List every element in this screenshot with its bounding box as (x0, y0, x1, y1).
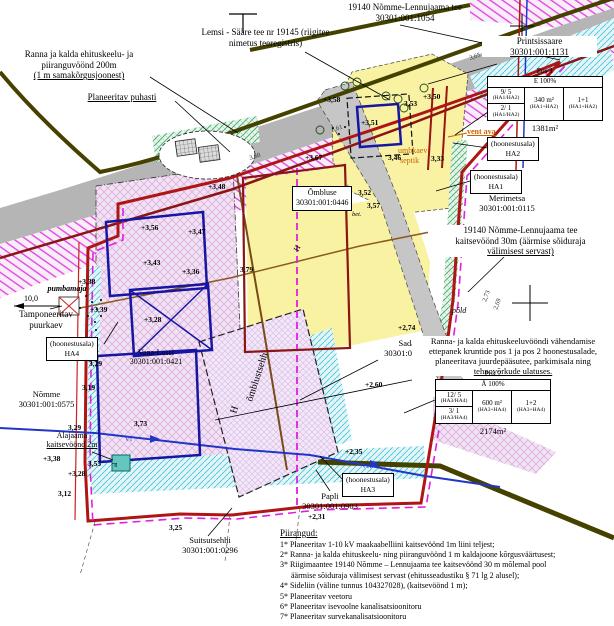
legend-item: 3* Riigimaantee 19140 Nõmme – Lennujaama… (280, 560, 555, 570)
elevation-mark: 3,25 (169, 523, 182, 532)
spot-height-rotated: 2,69 (492, 298, 502, 311)
table-pos2-cell: 1+2(HA3+HA4) (512, 391, 550, 423)
table-pos2-cell: 12/ 5(HA3/HA4) (436, 391, 472, 407)
elevation-mark: 3,79 (240, 265, 253, 274)
pipe-label: V1 (125, 437, 132, 443)
box-ha1: (hoonestusala) HA1 (470, 170, 522, 194)
label-ombluse-name: Õmbluse (296, 188, 348, 198)
label-pold: põld (452, 306, 466, 315)
label-road-protection-30m: 19140 Nõmme-Lennujaama tee kaitsevöönd 3… (428, 225, 613, 257)
material-note: bet. (352, 211, 362, 218)
label-lemsi-line2: nimetus teeregistris) (158, 38, 373, 49)
elevation-mark: +3,36 (182, 267, 199, 276)
table-pos1-box: E 100% 9/ 5(HA1/HA2) 2/ 1(HA1/HA2) 340 m… (487, 76, 603, 121)
elevation-mark: 3,29 (89, 359, 102, 368)
table-pos2-header: Ä 100% (436, 380, 550, 391)
box-ha4: (hoonestusala) HA4 (46, 337, 98, 361)
legend-item: 1* Planeeritav 1-10 kV maakaabelliini ka… (280, 540, 555, 550)
legend-item: 6* Planeeritav isevoolne kanalisatsiooni… (280, 602, 555, 612)
label-tamponeeritav-line1: Tamponeeritav (0, 309, 92, 320)
label-septik: septik (400, 156, 419, 165)
label-papli: Papli 30301:001:0903 (300, 491, 360, 511)
label-merimetsa-name: Merimetsa (462, 193, 552, 203)
elevation-mark: 3,12 (58, 489, 71, 498)
label-ombluse: Õmbluse 30301:001:0446 (292, 186, 352, 211)
label-alajaam-line2: kaitsevöönd 2m (38, 440, 106, 449)
label-vahendamine-line2: ettepanek kruntide pos 1 ja pos 2 hoones… (412, 346, 614, 356)
spot-height-rotated: 2,73 (481, 290, 491, 303)
label-printsissaare-name: Printsissaare (482, 36, 597, 47)
restrictions-legend: Piirangud: 1* Planeeritav 1-10 kV maakaa… (280, 528, 555, 623)
label-road-main-line1: 19140 Nõmme-Lennujaama tee (320, 2, 490, 13)
label-road-main: 19140 Nõmme-Lennujaama tee 30301:001:105… (320, 2, 490, 23)
label-printsissaare-code: 30301:001:1131 (482, 47, 597, 58)
label-papli-name: Papli (300, 491, 360, 501)
label-treatment-plant: Planeeritav puhasti (66, 92, 178, 103)
label-shore-line2: piiranguvöönd 200m (0, 60, 158, 71)
label-ombluse-code: 30301:001:0446 (296, 198, 348, 208)
label-umbkaev: umbkaev (398, 146, 427, 155)
elevation-mark: +3,58 (323, 95, 340, 104)
elevation-mark: +3,39 (90, 305, 107, 314)
elevation-mark: +3,67 (305, 153, 322, 162)
elevation-mark: 3,33 (431, 154, 444, 163)
elevation-mark: +3,38 (43, 454, 60, 463)
label-nomme-code: 30301:001:0575 (4, 399, 89, 409)
label-alajaam: Alajaama kaitsevöönd 2m (38, 431, 106, 450)
box-ha1-line1: (hoonestusala) (474, 172, 518, 182)
table-pos1-header: E 100% (488, 77, 602, 88)
table-pos1: Pos 1 E 100% 9/ 5(HA1/HA2) 2/ 1(HA1/HA2)… (487, 66, 603, 133)
elevation-mark: +3,28 (68, 469, 85, 478)
table-pos2-area: 2174m² (435, 426, 551, 436)
elevation-mark: 3,53 (404, 99, 417, 108)
label-suitsutsehh: Suitsutsehhi 30301:001:0296 (165, 535, 255, 555)
elevation-mark: 3,52 (358, 188, 371, 197)
legend-item: 2* Ranna- ja kalda ehituskeelu- ning pii… (280, 550, 555, 560)
elevation-mark: +2,31 (308, 512, 325, 521)
table-pos2-box: Ä 100% 12/ 5(HA3/HA4) 3/ 1(HA3/HA4) 600 … (435, 379, 551, 424)
label-vahendamine-line3: planeeritava juurdepääsutee, parkimisala… (412, 356, 614, 366)
legend-title: Piirangud: (280, 528, 555, 540)
legend-item: 7* Planeeritav survekanalisatsioonitoru (280, 612, 555, 622)
elevation-mark: +3,47 (188, 227, 205, 236)
label-lemsi-line1: Lemsi - Sääre tee nr 19145 (riigitee (158, 27, 373, 38)
label-distance-10: 10,0 (24, 294, 38, 303)
label-vent-ava: vent ava (467, 127, 496, 136)
pipe-label: V1 (362, 464, 369, 470)
label-vana-lossi-name: Vana-Lossi (120, 348, 192, 357)
label-suitsutsehh-code: 30301:001:0296 (165, 545, 255, 555)
label-shore-line1: Ranna ja kalda ehituskeelu- ja (0, 49, 158, 60)
elevation-mark: 3,46 (388, 153, 401, 162)
table-pos1-title: Pos 1 (487, 66, 603, 75)
label-vana-lossi-code: 30301:001:0421 (120, 357, 192, 366)
box-ha4-line1: (hoonestusala) (50, 339, 94, 349)
label-suitsutsehh-name: Suitsutsehhi (165, 535, 255, 545)
label-kaitse30-line1: 19140 Nõmme-Lennujaama tee (428, 225, 613, 236)
legend-item: 4* Sideliin (väline tunnus 104327028), (… (280, 581, 555, 591)
elevation-mark: +2,74 (398, 323, 415, 332)
label-nomme: Nõmme 30301:001:0575 (4, 389, 89, 409)
label-merimetsa: Merimetsa 30301:001:0115 (462, 193, 552, 213)
elevation-mark: +2,35 (345, 447, 362, 456)
label-merimetsa-code: 30301:001:0115 (462, 203, 552, 213)
elevation-mark: +3,43 (143, 258, 160, 267)
label-papli-code: 30301:001:0903 (300, 501, 360, 511)
treatment-plant (159, 131, 255, 179)
legend-item: äärmise sõiduraja välimisest servast (eh… (291, 571, 555, 581)
table-pos2: Pos 2 Ä 100% 12/ 5(HA3/HA4) 3/ 1(HA3/HA4… (435, 369, 551, 436)
label-shore-line3: (1 m samakõrgusjoonest) (0, 70, 158, 81)
box-ha3-line1: (hoonestusala) (346, 475, 390, 485)
box-ha4-line2: HA4 (50, 349, 94, 359)
label-tamponeeritav-line2: puurkaev (0, 320, 92, 331)
table-pos1-cell: 340 m²(HA1+HA2) (525, 88, 564, 120)
label-nomme-name: Nõmme (4, 389, 89, 399)
site-plan-page: õmblustsehh H H al 3,68 3,61 3,65 2,73 2… (0, 0, 614, 626)
label-kaitse30-line2: kaitsevöönd 30m (äärmise sõiduraja (428, 236, 613, 247)
label-tamponeeritav-puurkaev: Tamponeeritav puurkaev (0, 309, 92, 330)
substation-label: al (112, 462, 119, 467)
label-printsissaare: Printsissaare 30301:001:1131 (482, 36, 597, 57)
box-ha1-line2: HA1 (474, 182, 518, 192)
label-lemsi-road: Lemsi - Sääre tee nr 19145 (riigitee nim… (158, 27, 373, 48)
table-pos1-cell: 1+1(HA1+HA2) (564, 88, 602, 120)
label-vahendamine-line1: Ranna- ja kalda ehituskeeluvööndi vähend… (412, 336, 614, 346)
box-ha2: (hoonestusala) HA2 (487, 137, 539, 161)
elevation-mark: +3,48 (208, 182, 225, 191)
elevation-mark: 3,55 (88, 459, 101, 468)
box-ha2-line2: HA2 (491, 149, 535, 159)
label-vana-lossi: Vana-Lossi 30301:001:0421 (120, 348, 192, 367)
elevation-mark: 3,73 (134, 419, 147, 428)
elevation-mark: 3,57 (367, 201, 380, 210)
label-road-main-code: 30301:001:1054 (320, 13, 490, 24)
elevation-mark: +3,50 (423, 92, 440, 101)
table-pos2-title: Pos 2 (435, 369, 551, 378)
table-pos2-cell: 600 m²(HA3+HA4) (473, 391, 512, 423)
table-pos1-cell: 9/ 5(HA1/HA2) (488, 88, 524, 104)
legend-item: 5* Planeeritav veetoru (280, 592, 555, 602)
label-alajaam-line1: Alajaama (38, 431, 106, 440)
elevation-mark: +3,56 (141, 223, 158, 232)
box-ha2-line1: (hoonestusala) (491, 139, 535, 149)
table-pos1-area: 1381m² (487, 123, 603, 133)
elevation-mark: +2,60 (365, 380, 382, 389)
elevation-mark: +3,51 (361, 118, 378, 127)
elevation-mark: +3,38 (78, 277, 95, 286)
elevation-mark: 3,19 (82, 383, 95, 392)
table-pos2-cell: 3/ 1(HA3/HA4) (436, 407, 472, 422)
elevation-mark: +3,28 (144, 315, 161, 324)
table-pos1-cell: 2/ 1(HA1/HA2) (488, 104, 524, 119)
label-kaitse30-line3: välimisest servast) (428, 246, 613, 257)
label-shore-200m: Ranna ja kalda ehituskeelu- ja piiranguv… (0, 49, 158, 81)
elevation-mark: 3,29 (68, 423, 81, 432)
